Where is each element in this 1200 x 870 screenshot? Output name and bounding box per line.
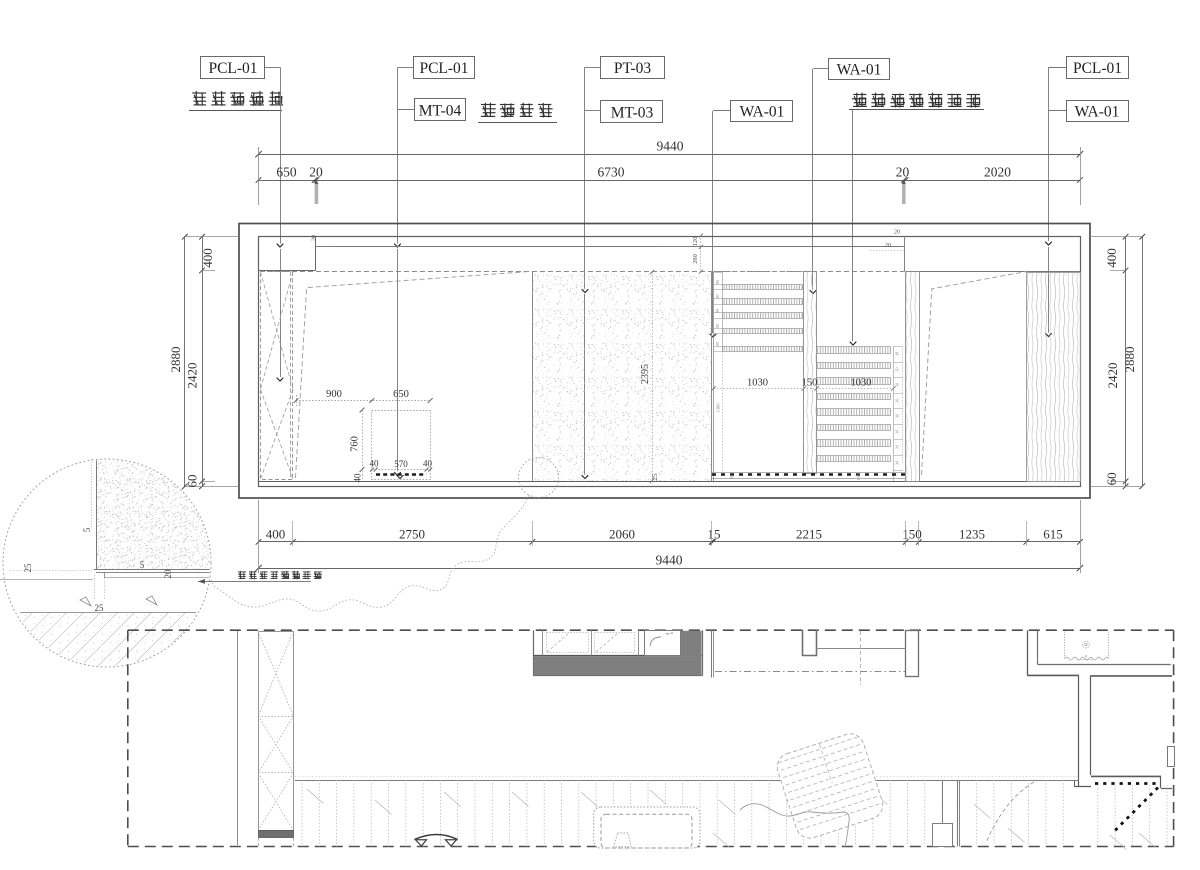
svg-text:MT-03: MT-03 [611, 105, 654, 122]
svg-text:900: 900 [326, 389, 342, 400]
svg-text:2750: 2750 [399, 527, 425, 542]
svg-text:20: 20 [309, 165, 323, 180]
svg-text:PCL-01: PCL-01 [419, 60, 468, 77]
svg-text:WA-01: WA-01 [1075, 104, 1120, 121]
svg-text:1235: 1235 [959, 527, 985, 542]
svg-text:2880: 2880 [168, 347, 183, 373]
svg-text:60: 60 [1104, 472, 1119, 485]
svg-text:150: 150 [856, 473, 861, 481]
svg-text:1380: 1380 [716, 403, 721, 413]
svg-text:30: 30 [894, 399, 899, 403]
svg-text:25: 25 [651, 473, 659, 481]
svg-text:120: 120 [692, 237, 699, 247]
svg-text:60: 60 [185, 475, 200, 488]
svg-text:30: 30 [895, 414, 900, 418]
svg-text:30: 30 [895, 367, 900, 371]
svg-text:20: 20 [894, 230, 900, 236]
svg-text:50: 50 [729, 474, 734, 479]
svg-text:20: 20 [896, 165, 910, 180]
svg-text:25: 25 [23, 563, 33, 573]
svg-text:400: 400 [200, 248, 215, 268]
svg-text:280: 280 [692, 254, 699, 264]
svg-text:570: 570 [394, 459, 408, 469]
svg-text:PT-03: PT-03 [614, 60, 652, 77]
svg-text:WA-01: WA-01 [740, 104, 785, 121]
svg-text:40: 40 [423, 459, 433, 469]
svg-text:90: 90 [715, 280, 720, 284]
svg-text:2395: 2395 [640, 364, 651, 384]
svg-text:5: 5 [140, 560, 145, 570]
svg-text:20: 20 [163, 569, 173, 579]
svg-text:2215: 2215 [796, 527, 822, 542]
svg-text:9440: 9440 [657, 139, 684, 154]
svg-text:650: 650 [276, 165, 297, 180]
svg-text:MT-04: MT-04 [419, 103, 462, 120]
svg-text:30: 30 [895, 430, 900, 434]
svg-text:40: 40 [353, 473, 363, 483]
svg-text:20: 20 [885, 243, 891, 249]
svg-text:30: 30 [895, 352, 900, 356]
svg-text:90: 90 [715, 324, 720, 328]
svg-text:PCL-01: PCL-01 [208, 60, 257, 77]
svg-text:400: 400 [266, 527, 286, 542]
svg-text:1030: 1030 [747, 378, 768, 389]
svg-text:2420: 2420 [1105, 363, 1120, 389]
svg-text:2060: 2060 [609, 527, 635, 542]
svg-text:6730: 6730 [598, 165, 625, 180]
svg-text:25: 25 [95, 603, 105, 613]
svg-text:90: 90 [715, 294, 720, 298]
svg-text:40: 40 [370, 459, 380, 469]
svg-text:760: 760 [350, 436, 361, 452]
svg-text:615: 615 [1043, 527, 1063, 542]
svg-text:WA-01: WA-01 [837, 62, 882, 79]
svg-text:2020: 2020 [984, 165, 1011, 180]
svg-text:30: 30 [895, 461, 900, 465]
svg-text:15: 15 [708, 527, 721, 542]
svg-text:1030: 1030 [851, 378, 872, 389]
svg-text:2880: 2880 [1122, 347, 1137, 373]
svg-text:20: 20 [312, 235, 318, 241]
svg-text:2420: 2420 [185, 363, 200, 389]
svg-text:90: 90 [715, 309, 720, 313]
svg-text:9440: 9440 [656, 553, 683, 568]
svg-text:30: 30 [895, 445, 900, 449]
svg-text:PCL-01: PCL-01 [1073, 60, 1122, 77]
svg-text:400: 400 [1104, 248, 1119, 268]
svg-text:650: 650 [393, 389, 409, 400]
svg-text:90: 90 [715, 342, 720, 346]
svg-text:150: 150 [802, 378, 818, 389]
svg-text:5: 5 [82, 527, 92, 532]
svg-text:φ: φ [1085, 653, 1088, 658]
